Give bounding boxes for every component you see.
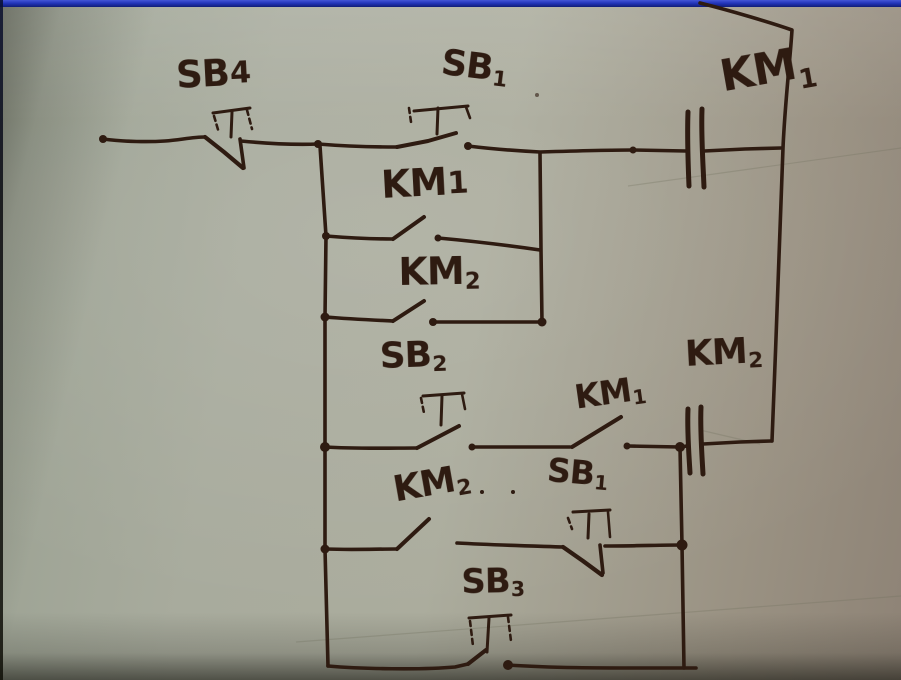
label-sb1-lower: SB1 — [546, 450, 610, 494]
label-km1-contact-selfhold: KM1 — [380, 158, 469, 206]
label-sb3: SB3 — [461, 561, 524, 602]
sb1-no-pushbutton-top — [397, 106, 470, 147]
sb2-no-pushbutton — [325, 393, 465, 448]
label-km1-contact-interlock: KM1 — [572, 368, 647, 416]
label-sb1-top: SB1 — [439, 42, 510, 91]
km2-no-contact-lower — [325, 519, 563, 549]
left-rail — [320, 146, 328, 666]
sb4-nc-pushbutton — [205, 108, 252, 168]
supply-wire-left — [103, 137, 205, 142]
label-km2-contact-selfhold: KM2 — [398, 249, 480, 294]
sb1-nc-pushbutton-lower — [563, 510, 682, 575]
km1-coil — [688, 109, 781, 187]
label-sb2: SB2 — [379, 334, 447, 377]
wire-sb4-to-junction — [241, 141, 318, 144]
wire-sb1-to-km1coil — [468, 146, 686, 152]
circuit-drawing — [0, 0, 901, 680]
km1-no-contact-interlock — [472, 417, 680, 447]
label-sb4: SB4 — [175, 50, 251, 97]
wire-junction-to-sb1 — [318, 144, 397, 147]
selfhold-branch-vertical — [540, 153, 542, 322]
photo-of-circuit-diagram: SB4 SB1 KM1 KM1 KM2 SB2 KM1 KM2 KM2 SB1 … — [0, 0, 901, 680]
km2-coil — [680, 407, 771, 474]
label-km2-coil: KM2 — [684, 330, 763, 375]
lower-branch-vertical — [680, 447, 684, 668]
sb3-no-pushbutton — [328, 615, 696, 669]
km1-no-contact-selfhold — [326, 217, 540, 250]
